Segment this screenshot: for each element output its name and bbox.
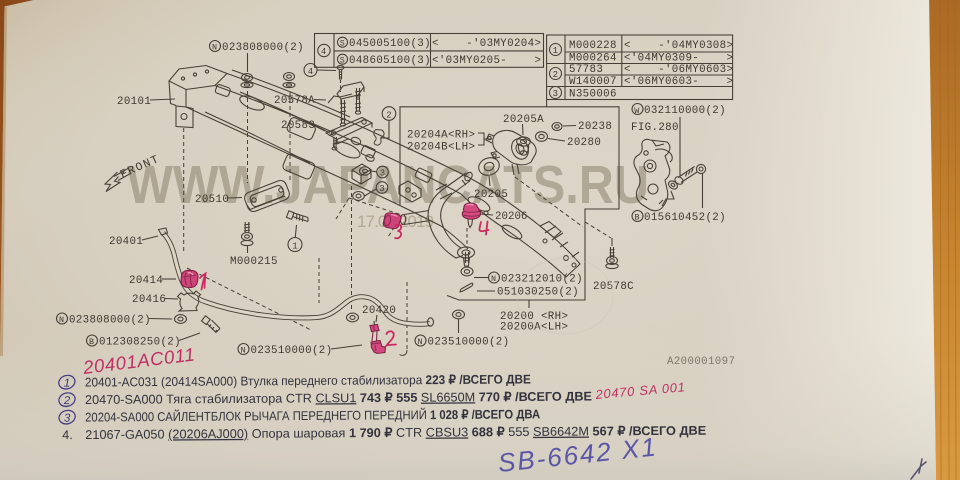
svg-text:20205: 20205 [474,189,508,201]
svg-text:20238: 20238 [578,121,612,133]
svg-text:B: B [89,337,94,347]
svg-text:045005100(3): 045005100(3) [349,38,431,50]
svg-text:W: W [634,106,640,116]
svg-text:N: N [212,43,217,53]
svg-text:N: N [491,274,496,284]
svg-text:2: 2 [63,395,71,407]
svg-text:051030250(2): 051030250(2) [497,287,579,299]
svg-text:WWW.JAPANCATS.RU: WWW.JAPANCATS.RU [127,155,649,215]
svg-text:< -'03MY0204>: < -'03MY0204> [432,38,541,50]
svg-text:N: N [418,337,423,347]
svg-text:M000228: M000228 [569,40,617,52]
svg-text:015610452(2): 015610452(2) [644,212,726,224]
svg-text:FIG.280: FIG.280 [631,122,679,134]
svg-text:< -'06MY0603>: < -'06MY0603> [624,64,733,76]
svg-text:3: 3 [64,413,71,425]
svg-text:023510000(2): 023510000(2) [428,337,510,349]
svg-text:N: N [241,346,246,356]
svg-text:20510: 20510 [195,194,229,206]
svg-text:048605100(3): 048605100(3) [349,55,431,67]
svg-text:M000215: M000215 [230,256,278,268]
svg-text:20583: 20583 [281,120,315,132]
svg-text:N350006: N350006 [569,89,617,101]
svg-text:3: 3 [553,89,559,99]
svg-text:<'03MY0205- >: <'03MY0205- > [432,55,541,67]
svg-text:A200001097: A200001097 [667,356,735,368]
svg-text:B: B [635,213,640,223]
svg-text:20200A<LH>: 20200A<LH> [500,322,568,334]
svg-text:1: 1 [64,378,70,390]
svg-text:20204-SA000 САЙЛЕНТБЛОК РЫЧАГА: 20204-SA000 САЙЛЕНТБЛОК РЫЧАГА ПЕРЕДНЕГО… [85,406,540,424]
svg-text:023510000(2): 023510000(2) [251,345,333,357]
svg-text:20280: 20280 [567,137,601,149]
svg-text:3: 3 [380,169,386,179]
svg-text:1: 1 [553,46,559,56]
svg-text:032110000(2): 032110000(2) [644,105,726,117]
svg-text:20416: 20416 [132,294,166,306]
svg-text:023808000(2): 023808000(2) [222,42,304,54]
svg-text:20204A<RH>: 20204A<RH> [407,130,475,142]
svg-text:<'06MY0603- >: <'06MY0603- > [624,76,733,88]
svg-text:W140007: W140007 [569,76,617,88]
svg-text:4: 4 [321,47,327,57]
svg-text:20401: 20401 [109,236,143,248]
svg-text:023212010(2): 023212010(2) [501,274,583,286]
svg-text:20204B<LH>: 20204B<LH> [407,142,475,154]
svg-text:20578C: 20578C [593,281,634,293]
svg-text:2: 2 [386,110,392,120]
svg-text:4: 4 [308,67,314,77]
svg-text:57783: 57783 [569,64,603,76]
svg-text:20206: 20206 [495,211,527,223]
svg-text:N: N [59,315,64,325]
svg-text:20414: 20414 [129,275,163,287]
svg-text:20420: 20420 [362,305,396,317]
svg-text:<'04MY0309- >: <'04MY0309- > [624,53,733,65]
svg-text:3: 3 [379,184,385,194]
svg-text:S: S [340,39,345,49]
svg-text:20205A: 20205A [503,114,544,126]
svg-text:023808000(2): 023808000(2) [69,315,151,327]
svg-text:1: 1 [292,241,298,251]
svg-text:20101: 20101 [117,96,151,108]
svg-text:< -'04MY0308>: < -'04MY0308> [624,40,733,52]
svg-text:M000264: M000264 [569,53,617,65]
svg-text:4.: 4. [62,428,73,442]
svg-text:S: S [340,56,345,66]
svg-text:20578A: 20578A [274,95,315,107]
svg-text:2: 2 [553,70,559,80]
